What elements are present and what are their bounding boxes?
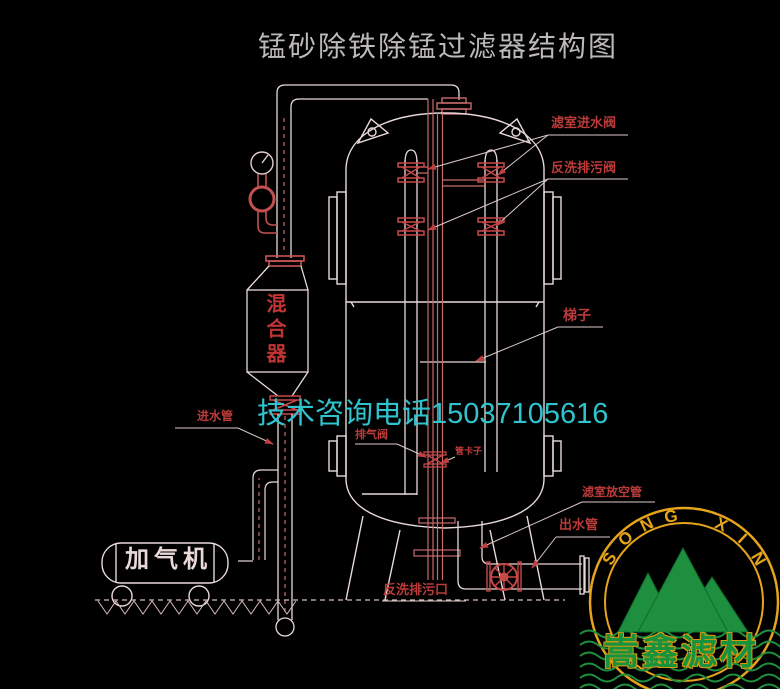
label-aerator: 加气机 (125, 547, 212, 572)
watermark-phone: 技术咨询电话15037105616 (257, 399, 608, 429)
outlet-end-flange (580, 556, 584, 594)
lifting-lug-left (358, 119, 388, 143)
label-outlet-pipe: 出水管 (559, 518, 598, 532)
pressure-gauge (251, 152, 273, 174)
central-pipes (414, 99, 485, 580)
logo-mountains (618, 548, 748, 632)
label-inlet-pipe: 进水管 (197, 410, 233, 423)
gauge-valve (250, 174, 277, 233)
nozzle-lower-left (329, 436, 346, 476)
internal-standpipes (405, 150, 497, 495)
label-backwash-drain-valve: 反洗排污阀 (551, 161, 616, 175)
vessel-top-nozzle (437, 98, 471, 114)
label-ladder: 梯子 (563, 308, 591, 323)
label-mixer: 混合器 (263, 293, 284, 368)
mixer-inlet-flange (266, 256, 304, 266)
top-pipe (277, 85, 459, 258)
air-line (238, 470, 278, 561)
label-backwash-drain-outlet: 反洗排污口 (383, 583, 448, 597)
media-level-line (346, 302, 544, 307)
label-pipe-clamp: 管卡子 (455, 447, 482, 456)
vessel-leg-right (490, 516, 544, 600)
label-exhaust-valve: 排气阀 (355, 430, 388, 442)
page-title: 锰砂除铁除锰过滤器结构图 (258, 33, 618, 62)
logo-brand-text: 嵩鑫滤材 (603, 633, 759, 671)
label-chamber-vent-pipe: 滤室放空管 (582, 486, 642, 499)
nozzle-lower-right (544, 436, 561, 476)
label-chamber-inlet-valve: 滤室进水阀 (551, 116, 616, 130)
nozzle-upper-right (544, 192, 561, 284)
outlet-valve-handwheel (487, 562, 521, 591)
chamber-inlet-valves (398, 163, 504, 182)
nozzle-upper-left (329, 192, 346, 284)
vessel-dish-bottom (346, 480, 544, 528)
diagram-page: 锰砂除铁除锰过滤器结构图 技术咨询电话15037105616 滤室进水阀 反洗排… (0, 0, 780, 689)
ground-hatching (98, 601, 296, 614)
